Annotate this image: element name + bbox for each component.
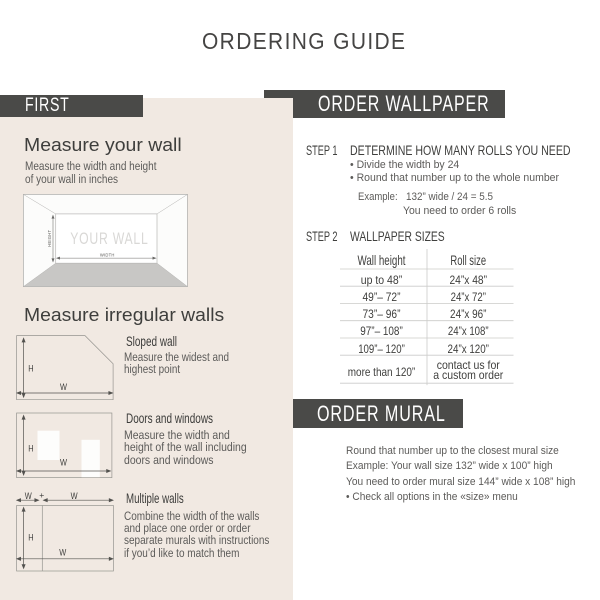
svg-text:W: W — [60, 381, 67, 392]
svg-text:W: W — [59, 546, 66, 557]
svg-text:W: W — [60, 456, 67, 467]
svg-text:WIDTH: WIDTH — [99, 253, 114, 258]
svg-text:HEIGHT: HEIGHT — [47, 230, 52, 247]
svg-text:W: W — [25, 490, 32, 501]
svg-text:H: H — [28, 362, 33, 373]
svg-text:H: H — [28, 531, 33, 542]
svg-text:W: W — [71, 490, 78, 501]
svg-text:+: + — [39, 490, 44, 500]
svg-text:H: H — [28, 442, 33, 453]
svg-text:YOUR WALL: YOUR WALL — [70, 230, 148, 248]
